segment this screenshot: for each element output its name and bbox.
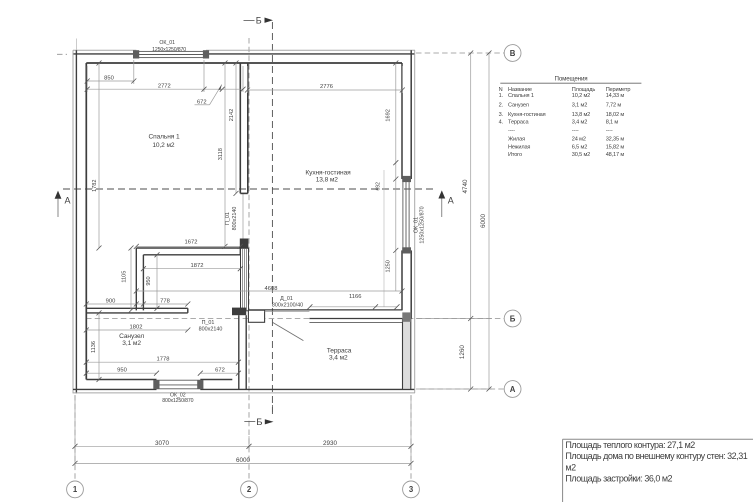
svg-text:Кухня-гостиная: Кухня-гостиная: [508, 112, 546, 118]
svg-text:32,35 м: 32,35 м: [606, 137, 625, 143]
svg-text:6,5 м2: 6,5 м2: [572, 144, 587, 150]
svg-text:1250х1250/870: 1250х1250/870: [419, 206, 425, 243]
svg-text:15,82 м: 15,82 м: [606, 144, 625, 150]
svg-text:6000: 6000: [236, 457, 251, 464]
svg-text:Б: Б: [256, 16, 262, 26]
svg-text:672: 672: [215, 368, 225, 374]
svg-text:1692: 1692: [386, 109, 392, 121]
svg-text:3,4 м2: 3,4 м2: [329, 355, 348, 362]
svg-text:----: ----: [572, 128, 579, 134]
svg-text:1.: 1.: [499, 93, 504, 99]
svg-text:N: N: [499, 87, 503, 93]
svg-text:13,8 м2: 13,8 м2: [316, 177, 339, 184]
svg-text:3,1 м2: 3,1 м2: [572, 103, 587, 109]
svg-text:Б: Б: [256, 417, 262, 428]
svg-text:----: ----: [508, 128, 515, 134]
svg-text:3,4 м2: 3,4 м2: [572, 120, 587, 126]
svg-text:Санузел: Санузел: [119, 333, 144, 340]
svg-text:48,17 м: 48,17 м: [606, 152, 625, 158]
svg-text:4740: 4740: [462, 179, 469, 194]
svg-text:1802: 1802: [130, 324, 143, 330]
svg-text:Нежилая: Нежилая: [508, 144, 530, 150]
svg-text:А: А: [510, 385, 516, 394]
svg-text:Спальня 1: Спальня 1: [148, 133, 180, 140]
svg-text:24 м2: 24 м2: [572, 137, 586, 143]
svg-text:2930: 2930: [323, 440, 338, 447]
svg-text:Терраса: Терраса: [327, 348, 352, 355]
svg-text:1136: 1136: [91, 341, 97, 353]
svg-text:900: 900: [106, 298, 116, 304]
svg-text:Жилая: Жилая: [508, 137, 525, 143]
svg-text:950: 950: [117, 368, 127, 374]
svg-text:800х1250/870: 800х1250/870: [162, 398, 193, 404]
svg-text:Терраса: Терраса: [508, 120, 529, 126]
svg-text:1672: 1672: [185, 240, 198, 246]
svg-text:3070: 3070: [155, 440, 170, 447]
svg-text:Б: Б: [510, 314, 516, 323]
svg-text:672: 672: [197, 99, 207, 105]
svg-text:4608: 4608: [265, 286, 278, 292]
svg-text:3,1 м2: 3,1 м2: [122, 340, 141, 347]
svg-text:800х2100/40: 800х2100/40: [272, 303, 303, 309]
svg-text:8,1 м: 8,1 м: [606, 120, 619, 126]
svg-text:А: А: [64, 196, 70, 206]
svg-text:3: 3: [409, 485, 414, 494]
svg-text:ОК_01: ОК_01: [159, 40, 175, 46]
svg-text:----: ----: [606, 128, 613, 134]
svg-text:Спальня 1: Спальня 1: [508, 93, 534, 99]
svg-text:2.: 2.: [499, 103, 504, 109]
svg-text:Площадь теплого контура: 27,1: Площадь теплого контура: 27,1 м2: [565, 440, 695, 450]
svg-text:2: 2: [247, 485, 252, 494]
svg-text:3118: 3118: [218, 148, 224, 160]
svg-text:Кухня-гостиная: Кухня-гостиная: [305, 170, 351, 177]
svg-text:800х2140: 800х2140: [199, 326, 223, 332]
svg-text:Итого: Итого: [508, 152, 522, 158]
svg-text:Д_01: Д_01: [280, 296, 293, 302]
svg-text:П_01: П_01: [225, 212, 231, 225]
svg-text:800х2140: 800х2140: [232, 207, 238, 231]
svg-text:1250х1250/870: 1250х1250/870: [152, 47, 186, 53]
svg-text:6000: 6000: [480, 214, 487, 229]
svg-text:Санузел: Санузел: [508, 103, 529, 109]
svg-text:10,2 м2: 10,2 м2: [572, 93, 590, 99]
svg-text:1778: 1778: [157, 356, 170, 362]
svg-text:1782: 1782: [92, 179, 98, 191]
svg-text:1105: 1105: [121, 271, 127, 283]
svg-text:2142: 2142: [229, 109, 235, 121]
svg-text:Площадь дома по внешнему конту: Площадь дома по внешнему контуру стен: 3…: [565, 451, 747, 461]
svg-text:4.: 4.: [499, 120, 504, 126]
svg-text:13,8 м2: 13,8 м2: [572, 112, 590, 118]
svg-text:1872: 1872: [191, 263, 204, 269]
svg-text:Площадь: Площадь: [572, 87, 596, 93]
svg-text:3.: 3.: [499, 112, 504, 118]
svg-text:1166: 1166: [349, 294, 361, 300]
svg-text:14,33 м: 14,33 м: [606, 93, 625, 99]
svg-text:950: 950: [146, 276, 152, 285]
svg-text:18,02 м: 18,02 м: [606, 112, 625, 118]
svg-text:692: 692: [375, 182, 381, 191]
svg-text:850: 850: [104, 76, 114, 82]
svg-text:30,5 м2: 30,5 м2: [572, 152, 590, 158]
svg-text:2772: 2772: [158, 84, 171, 90]
svg-text:Периметр: Периметр: [606, 87, 631, 93]
svg-text:778: 778: [160, 298, 170, 304]
svg-text:Название: Название: [508, 87, 532, 93]
svg-text:10,2 м2: 10,2 м2: [152, 142, 175, 149]
svg-text:1: 1: [73, 485, 78, 494]
svg-text:1250: 1250: [386, 260, 392, 272]
svg-text:Помещения: Помещения: [555, 75, 588, 82]
svg-text:1260: 1260: [459, 345, 466, 360]
svg-text:м2: м2: [565, 462, 576, 472]
svg-text:П_01: П_01: [202, 320, 215, 326]
svg-text:А: А: [448, 195, 454, 205]
svg-text:7,72 м: 7,72 м: [606, 103, 622, 109]
svg-text:В: В: [510, 49, 516, 58]
svg-text:Площадь застройки: 36,0 м2: Площадь застройки: 36,0 м2: [565, 474, 672, 484]
svg-text:2776: 2776: [320, 84, 333, 90]
